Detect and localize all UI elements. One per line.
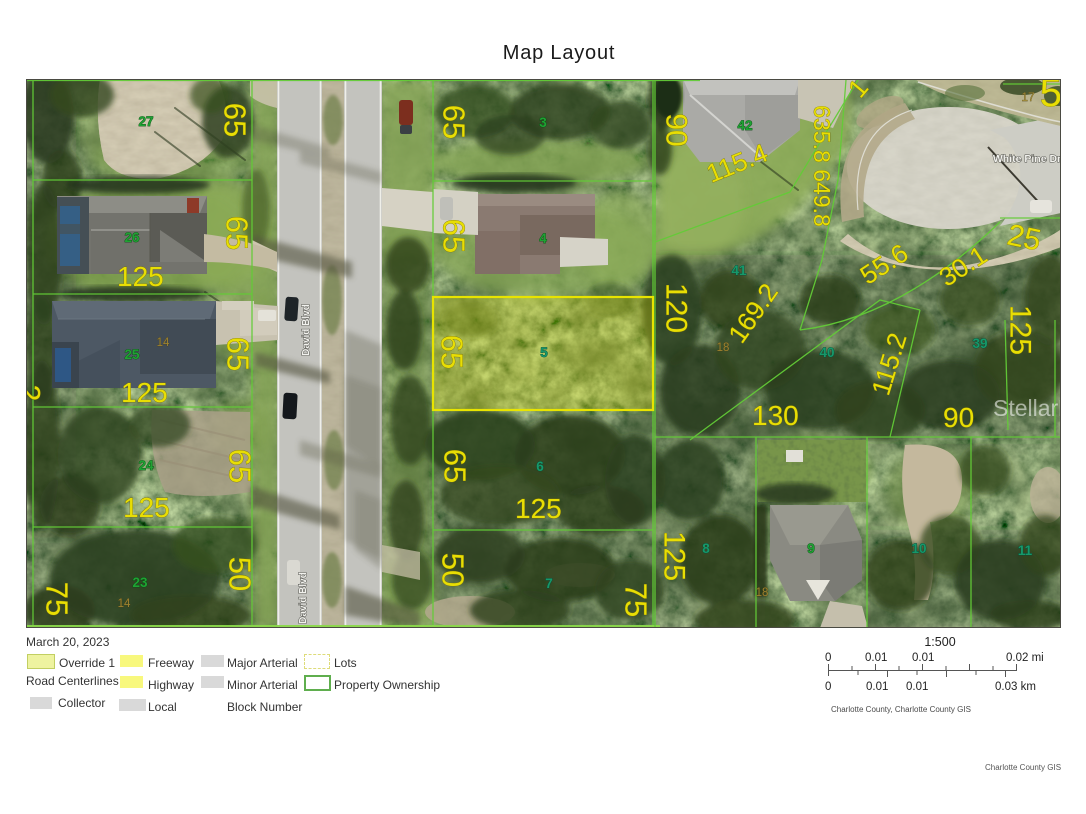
svg-text:39: 39: [972, 336, 987, 351]
svg-text:17: 17: [1021, 90, 1035, 104]
svg-text:24: 24: [138, 458, 154, 473]
svg-text:41: 41: [731, 263, 747, 278]
svg-text:11: 11: [1018, 543, 1033, 558]
svg-text:2: 2: [26, 385, 46, 402]
svg-text:StellarMLS: StellarMLS: [993, 395, 1061, 421]
svg-text:0.02 mi: 0.02 mi: [1006, 652, 1044, 664]
svg-text:90: 90: [943, 402, 974, 433]
svg-text:65: 65: [221, 337, 256, 371]
svg-text:75: 75: [40, 582, 75, 616]
svg-text:18: 18: [717, 342, 730, 354]
svg-text:David Blvd: David Blvd: [301, 304, 312, 356]
svg-text:14: 14: [118, 598, 131, 610]
svg-text:65: 65: [435, 335, 470, 369]
svg-text:42: 42: [737, 118, 752, 133]
svg-text:65: 65: [218, 103, 253, 137]
svg-text:9: 9: [807, 541, 815, 556]
svg-text:26: 26: [124, 230, 140, 245]
svg-text:635.8: 635.8: [809, 105, 835, 163]
svg-text:White Pine Dr: White Pine Dr: [993, 153, 1061, 165]
svg-text:0.01: 0.01: [865, 652, 887, 664]
svg-text:50: 50: [1040, 79, 1061, 115]
svg-text:65: 65: [223, 449, 258, 483]
svg-text:65: 65: [438, 449, 473, 483]
svg-text:27: 27: [138, 114, 153, 129]
svg-text:125: 125: [515, 493, 562, 524]
svg-text:5: 5: [540, 345, 548, 360]
svg-text:10: 10: [911, 541, 926, 556]
svg-text:40: 40: [819, 345, 834, 360]
svg-text:90: 90: [660, 113, 693, 146]
svg-text:4: 4: [539, 231, 547, 246]
svg-text:6: 6: [536, 459, 544, 474]
svg-text:125: 125: [117, 261, 164, 292]
svg-text:25: 25: [1004, 218, 1044, 257]
svg-text:0.01: 0.01: [912, 652, 934, 664]
svg-text:25: 25: [124, 347, 140, 362]
svg-text:0: 0: [825, 652, 831, 664]
svg-text:65: 65: [437, 105, 472, 139]
svg-text:14: 14: [157, 337, 170, 349]
svg-text:649.8: 649.8: [809, 169, 835, 227]
svg-text:65: 65: [437, 219, 472, 253]
svg-text:125: 125: [658, 531, 691, 581]
svg-text:125: 125: [1004, 305, 1037, 355]
svg-text:65: 65: [220, 216, 255, 250]
svg-text:50: 50: [436, 553, 471, 587]
svg-text:18: 18: [756, 587, 769, 599]
svg-text:0.01: 0.01: [906, 681, 928, 693]
svg-text:8: 8: [702, 541, 710, 556]
svg-text:0.01: 0.01: [866, 681, 888, 693]
svg-text:0: 0: [825, 681, 831, 693]
svg-text:0.03 km: 0.03 km: [995, 681, 1036, 693]
svg-text:120: 120: [660, 283, 693, 333]
svg-text:7: 7: [545, 576, 553, 591]
svg-text:75: 75: [619, 583, 654, 617]
svg-text:23: 23: [132, 575, 148, 590]
svg-text:50: 50: [223, 557, 258, 591]
svg-text:3: 3: [539, 115, 547, 130]
svg-text:125: 125: [121, 377, 168, 408]
svg-text:David Blvd: David Blvd: [298, 572, 309, 624]
svg-text:130: 130: [752, 400, 799, 431]
svg-text:125: 125: [123, 492, 170, 523]
